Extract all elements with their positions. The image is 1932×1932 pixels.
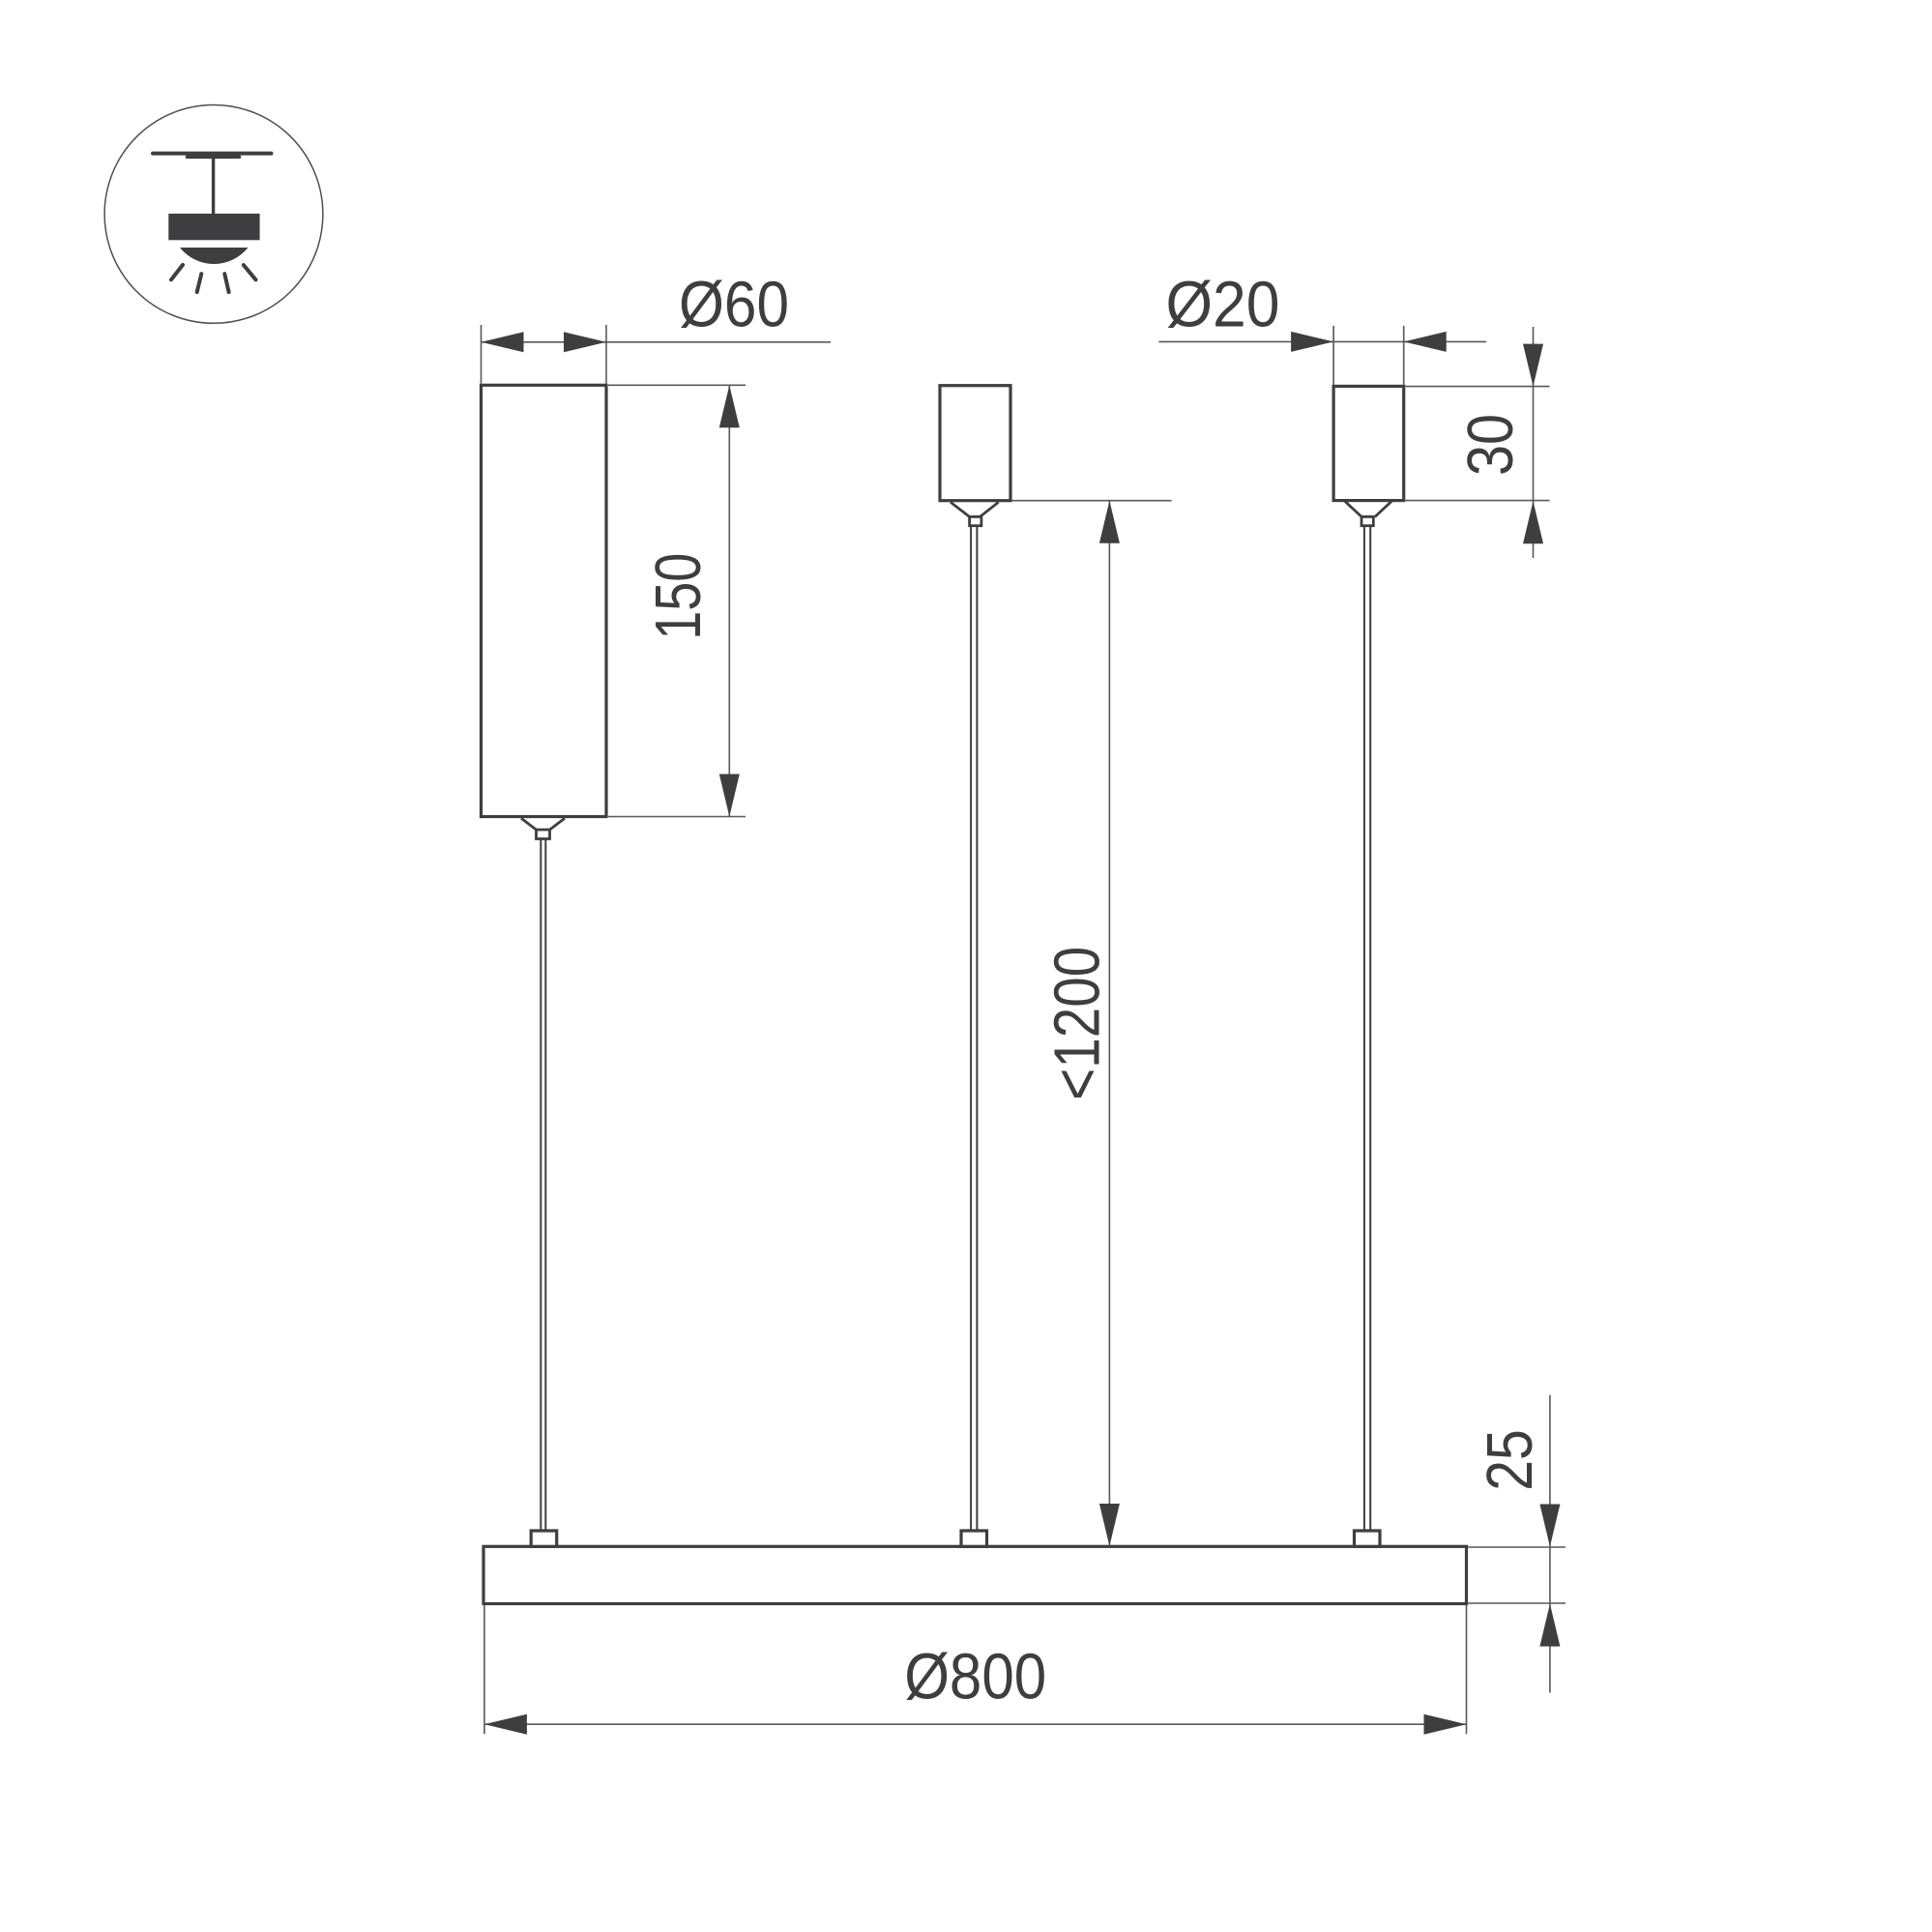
- svg-text:<1200: <1200: [1041, 947, 1114, 1100]
- svg-text:25: 25: [1474, 1429, 1546, 1491]
- svg-text:30: 30: [1454, 414, 1527, 476]
- svg-text:Ø800: Ø800: [904, 1641, 1046, 1713]
- svg-text:150: 150: [642, 553, 715, 640]
- svg-text:Ø20: Ø20: [1166, 269, 1280, 341]
- svg-text:Ø60: Ø60: [679, 269, 789, 341]
